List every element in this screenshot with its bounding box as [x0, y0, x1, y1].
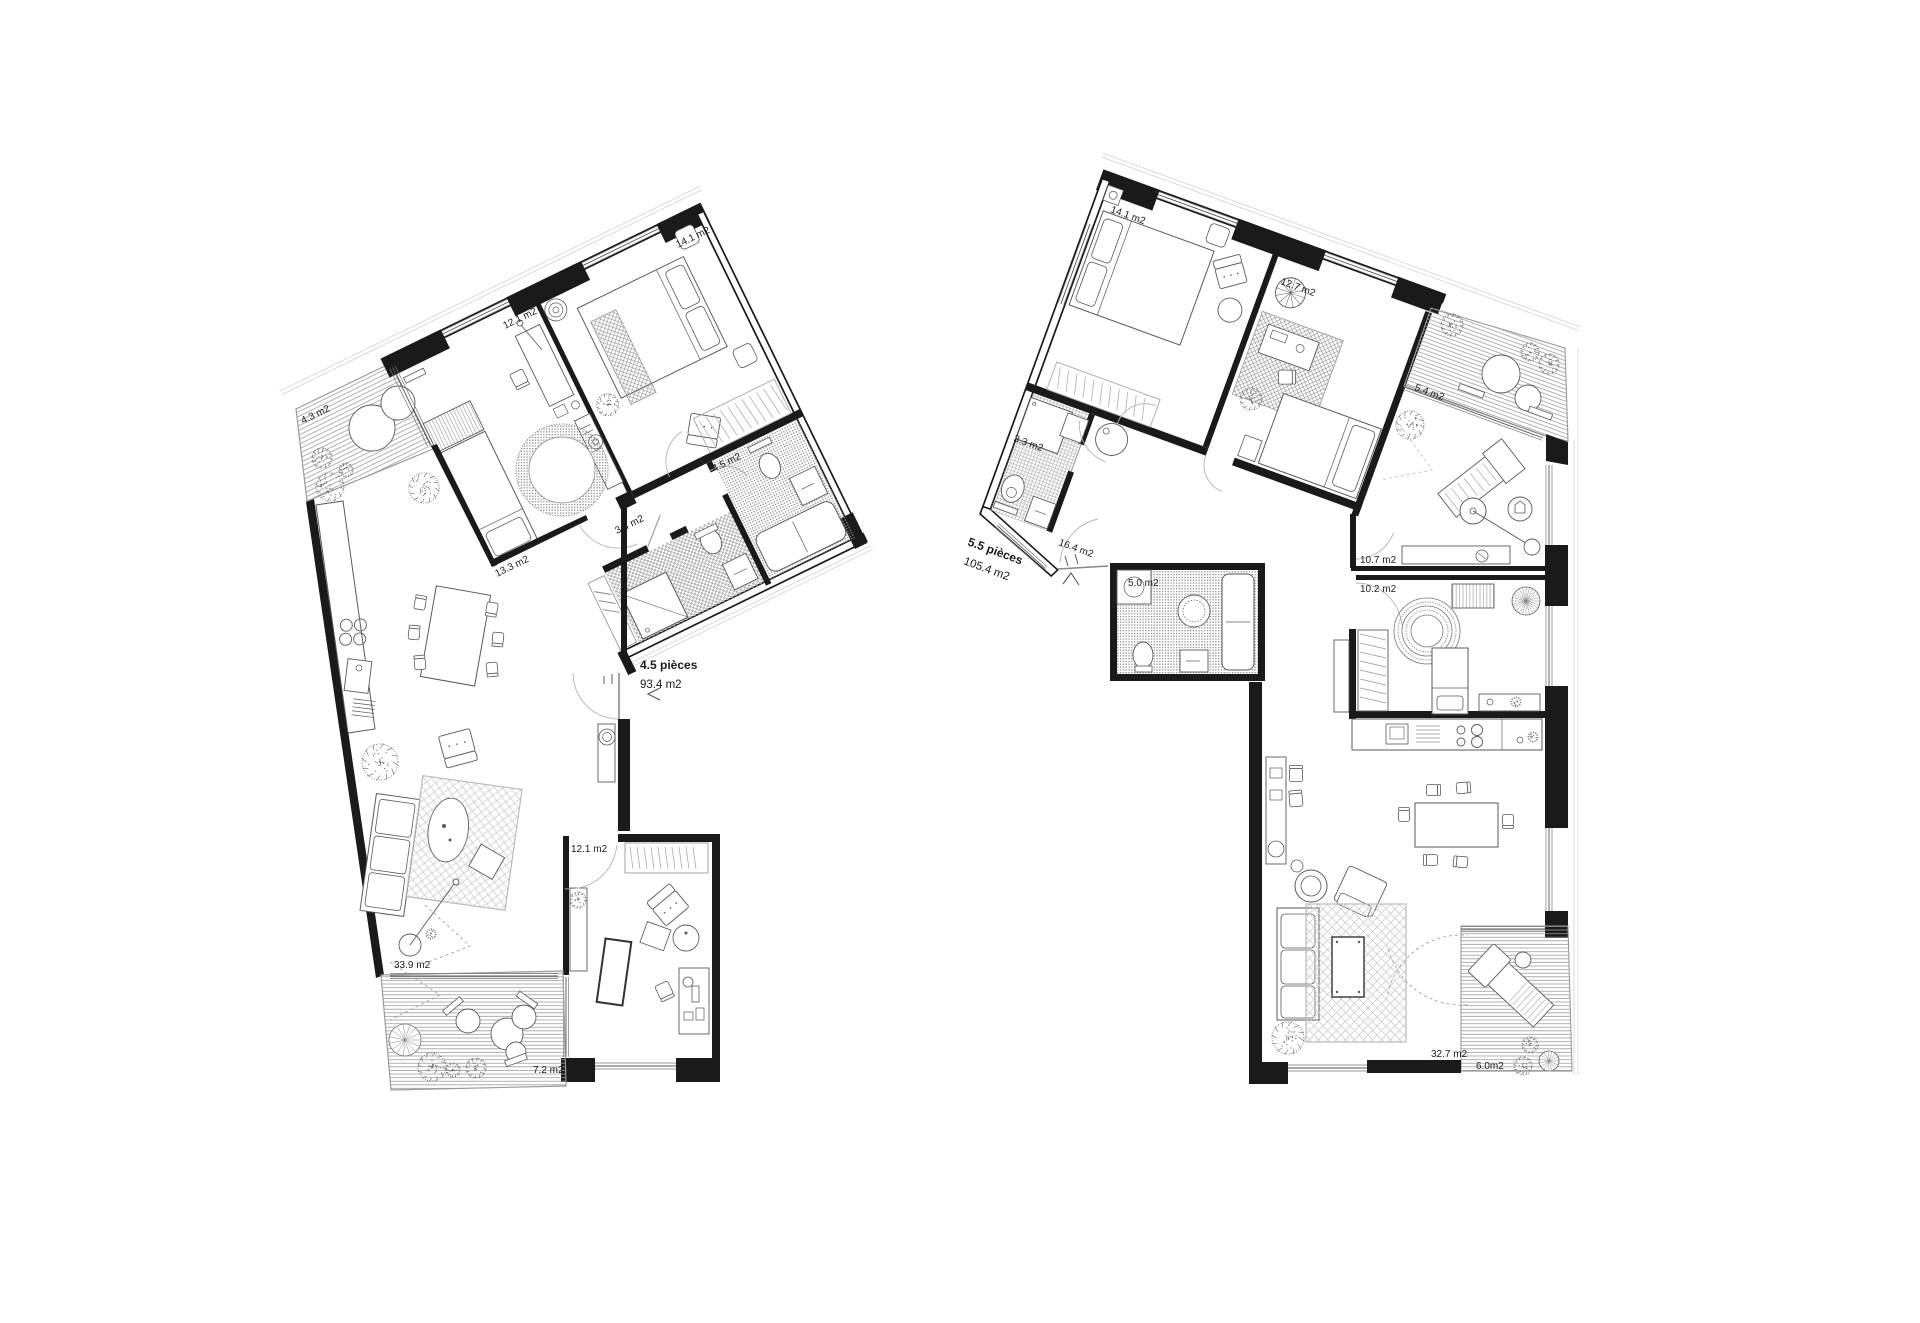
- svg-text:12.1 m2: 12.1 m2: [571, 844, 608, 855]
- svg-text:5.0 m2: 5.0 m2: [1128, 578, 1159, 589]
- svg-text:32.7 m2: 32.7 m2: [1431, 1049, 1468, 1060]
- svg-text:4.5 pièces: 4.5 pièces: [640, 658, 698, 672]
- svg-text:10.2 m2: 10.2 m2: [1360, 584, 1397, 595]
- svg-text:6.0m2: 6.0m2: [1476, 1061, 1504, 1072]
- svg-text:93.4 m2: 93.4 m2: [640, 679, 682, 691]
- svg-text:7.2 m2: 7.2 m2: [533, 1065, 564, 1076]
- svg-text:10.7 m2: 10.7 m2: [1360, 555, 1397, 566]
- svg-text:33.9 m2: 33.9 m2: [394, 960, 431, 971]
